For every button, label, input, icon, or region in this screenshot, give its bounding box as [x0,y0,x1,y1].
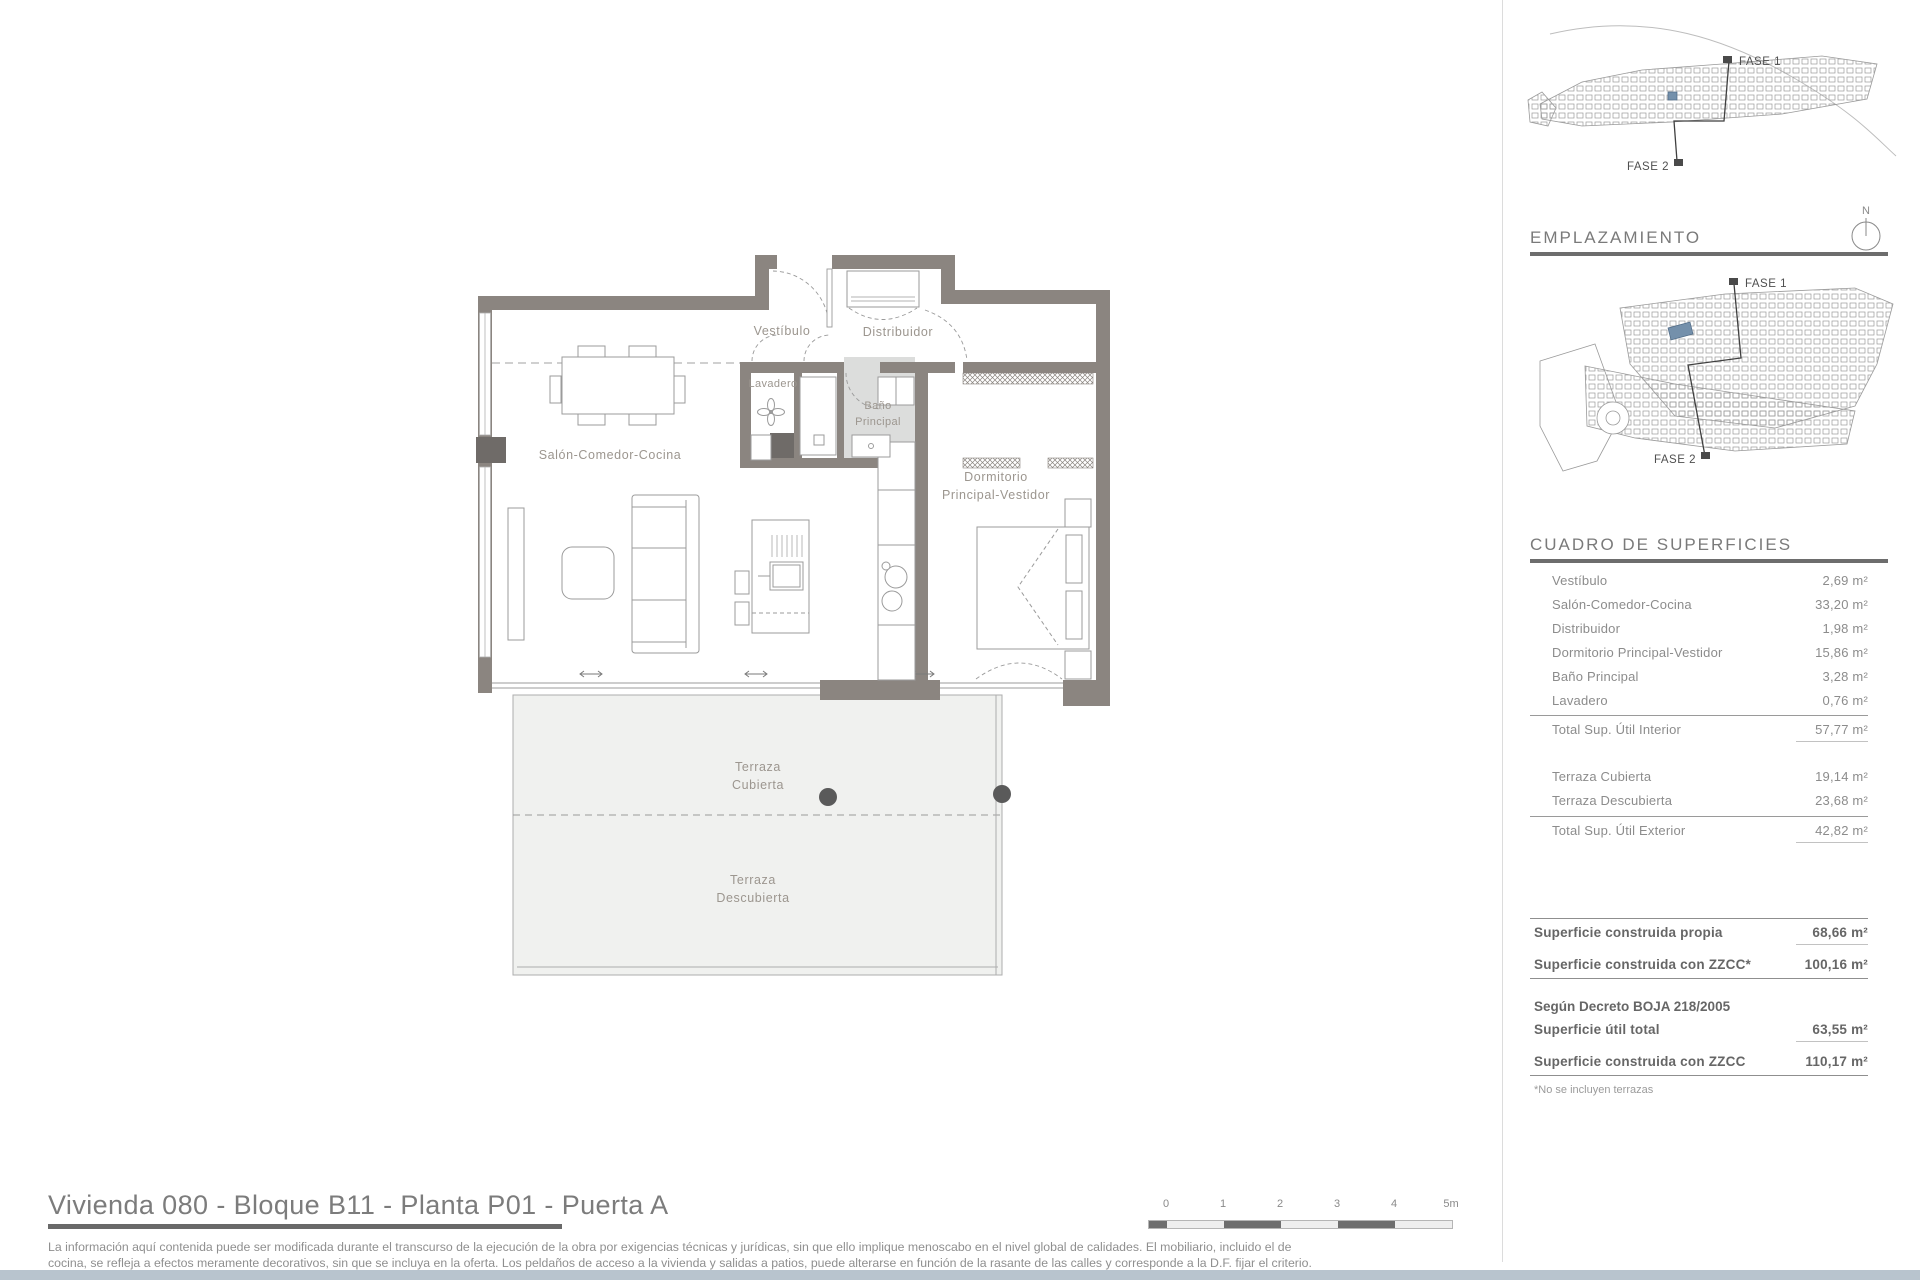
room-label-bano: Baño [864,400,891,412]
scale-label: 5m [1443,1198,1458,1210]
row-label: Dormitorio Principal-Vestidor [1552,645,1723,660]
row-value: 0,76 m² [1823,693,1868,708]
sitemap-plan: FASE 1 FASE 2 [1525,266,1910,506]
room-label-bano: Principal [855,416,901,428]
superficies-heading: CUADRO DE SUPERFICIES [1530,535,1792,555]
dining-set [550,346,685,425]
footer-strip [0,1270,1920,1280]
entrance-door-leaf [827,269,832,327]
table-row: Vestíbulo 2,69 m² [1530,568,1868,592]
scale-label: 1 [1220,1198,1226,1210]
summary-row: Superficie construida propia 68,66 m² [1530,919,1868,951]
row-value: 68,66 m² [1796,925,1868,945]
table-row: Terraza Descubierta 23,68 m² [1530,789,1868,813]
row-label: Superficie construida con ZZCC* [1534,957,1751,972]
row-value: 110,17 m² [1805,1054,1868,1069]
table-row: Terraza Cubierta 19,14 m² [1530,765,1868,789]
superficies-underline [1530,559,1888,563]
decreto-heading: Según Decreto BOJA 218/2005 [1530,979,1868,1016]
table-total-row: Total Sup. Útil Exterior 42,82 m² [1530,816,1868,848]
room-label-salon: Salón-Comedor-Cocina [539,448,682,462]
development-buildings [1540,56,1877,126]
page-title: Vivienda 080 - Bloque B11 - Planta P01 -… [48,1190,669,1221]
fase1-marker [1729,278,1738,285]
sofa-set [508,495,699,653]
fase2-marker [1701,452,1710,459]
summary-row: Superficie construida con ZZCC* 100,16 m… [1530,951,1868,979]
fase1-label: FASE 1 [1745,278,1787,290]
row-label: Terraza Descubierta [1552,793,1672,808]
bed-set [977,499,1091,679]
row-value: 15,86 m² [1815,645,1868,660]
table-row: Baño Principal 3,28 m² [1530,664,1868,688]
row-label: Superficie construida propia [1534,925,1723,940]
room-label-lavadero: Lavadero [748,378,797,390]
terrace-column [819,788,837,806]
table-total-row: Total Sup. Útil Interior 57,77 m² [1530,715,1868,747]
emplazamiento-heading: EMPLAZAMIENTO [1530,228,1701,248]
floorplan-drawing: Vestíbulo Distribuidor Lavadero Baño Pri… [420,205,1160,1005]
highlighted-unit [1668,92,1677,100]
sidebar-divider [1502,0,1503,1262]
table-row: Salón-Comedor-Cocina 33,20 m² [1530,592,1868,616]
emplazamiento-underline [1530,252,1888,256]
window [480,313,491,657]
row-label: Total Sup. Útil Exterior [1552,823,1685,838]
fase2-label: FASE 2 [1654,454,1696,466]
fase1-label: FASE 1 [1739,56,1781,68]
scale-label: 3 [1334,1198,1340,1210]
kitchen-island [735,520,809,633]
scale-bar-track [1148,1220,1453,1229]
summary-block: Superficie construida propia 68,66 m² Su… [1530,918,1868,1096]
summary-row: Superficie útil total 63,55 m² [1530,1016,1868,1048]
row-value: 3,28 m² [1823,669,1868,684]
row-value: 23,68 m² [1815,793,1868,808]
row-label: Superficie útil total [1534,1022,1660,1037]
room-label-dormitorio: Dormitorio [964,470,1028,484]
scale-label: 2 [1277,1198,1283,1210]
fase2-label: FASE 2 [1627,161,1669,172]
row-label: Vestíbulo [1552,573,1607,588]
disclaimer-line: cocina, se refleja a efectos meramente d… [48,1256,1486,1272]
room-label-terraza-cubierta: Cubierta [732,778,784,792]
row-value: 33,20 m² [1815,597,1868,612]
disclaimer-line: La información aquí contenida puede ser … [48,1240,1486,1256]
row-value: 57,77 m² [1796,722,1868,742]
terrace-column [993,785,1011,803]
row-label: Total Sup. Útil Interior [1552,722,1681,737]
row-value: 19,14 m² [1815,769,1868,784]
terrace-area [513,695,1011,975]
row-label: Superficie construida con ZZCC [1534,1054,1746,1069]
table-row: Distribuidor 1,98 m² [1530,616,1868,640]
room-label-terraza-cubierta: Terraza [735,760,781,774]
compass-n-label: N [1862,205,1870,217]
page-title-underline [48,1224,562,1229]
row-value: 2,69 m² [1823,573,1868,588]
closet [847,271,919,307]
disclaimer: La información aquí contenida puede ser … [48,1240,1486,1271]
table-row: Lavadero 0,76 m² [1530,688,1868,712]
row-value: 1,98 m² [1823,621,1868,636]
table-row: Dormitorio Principal-Vestidor 15,86 m² [1530,640,1868,664]
roundabout [1597,402,1629,434]
row-label: Terraza Cubierta [1552,769,1651,784]
row-value: 63,55 m² [1796,1022,1868,1042]
room-label-terraza-descubierta: Terraza [730,873,776,887]
room-label-distribuidor: Distribuidor [863,325,933,339]
scale-bar: 0 1 2 3 4 5m [1148,1198,1478,1234]
room-label-terraza-descubierta: Descubierta [716,891,789,905]
row-label: Distribuidor [1552,621,1620,636]
row-value: 42,82 m² [1796,823,1868,843]
summary-row: Superficie construida con ZZCC 110,17 m² [1530,1048,1868,1076]
compass: N [1836,203,1896,255]
washer-icon [758,399,785,426]
row-label: Salón-Comedor-Cocina [1552,597,1692,612]
row-value: 100,16 m² [1805,957,1868,972]
table-footnote: *No se incluyen terrazas [1530,1076,1868,1096]
kitchen-counter [878,442,915,680]
fase1-marker [1723,56,1732,63]
room-label-vestibulo: Vestíbulo [754,324,811,338]
room-label-dormitorio: Principal-Vestidor [942,488,1050,502]
scale-label: 0 [1163,1198,1169,1210]
fase2-marker [1674,159,1683,166]
row-label: Lavadero [1552,693,1608,708]
superficies-table: Vestíbulo 2,69 m² Salón-Comedor-Cocina 3… [1530,568,1868,847]
sitemap-perspective: FASE 1 FASE 2 [1522,4,1912,172]
scale-label: 4 [1391,1198,1397,1210]
row-label: Baño Principal [1552,669,1639,684]
wardrobe-strip [963,373,1093,468]
